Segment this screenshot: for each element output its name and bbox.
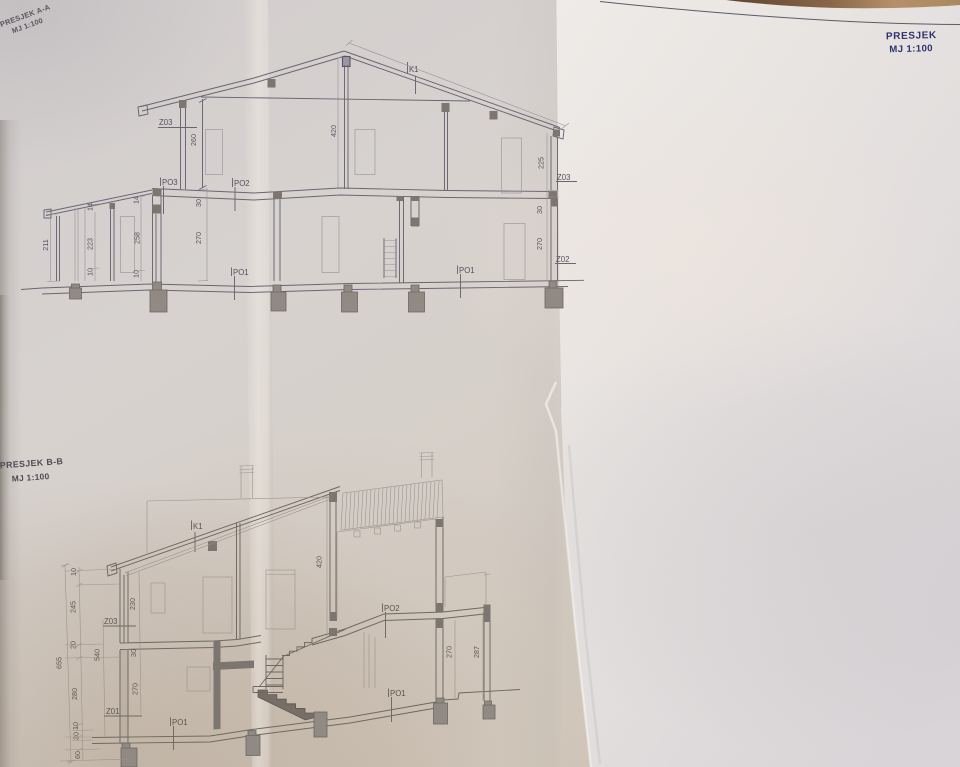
- svg-text:270: 270: [194, 232, 203, 244]
- svg-text:420: 420: [315, 556, 324, 568]
- svg-text:10: 10: [69, 568, 78, 576]
- svg-text:Z01: Z01: [106, 707, 119, 716]
- svg-text:260: 260: [189, 134, 198, 146]
- svg-text:14: 14: [86, 203, 95, 211]
- svg-text:10: 10: [86, 268, 95, 276]
- svg-text:245: 245: [69, 601, 78, 613]
- svg-text:30: 30: [194, 199, 203, 207]
- svg-text:PO1: PO1: [172, 718, 188, 727]
- svg-text:PO1: PO1: [459, 266, 475, 275]
- svg-text:225: 225: [537, 157, 546, 169]
- svg-text:MJ 1:100: MJ 1:100: [889, 43, 933, 55]
- svg-text:Z03: Z03: [159, 118, 172, 127]
- svg-text:270: 270: [445, 646, 454, 658]
- svg-text:PO1: PO1: [390, 689, 406, 698]
- svg-text:655: 655: [55, 657, 64, 669]
- svg-text:223: 223: [86, 238, 95, 250]
- svg-text:10: 10: [132, 270, 141, 278]
- svg-text:30: 30: [129, 649, 138, 657]
- svg-text:270: 270: [535, 238, 544, 250]
- svg-text:540: 540: [93, 649, 102, 661]
- svg-text:K1: K1: [193, 522, 203, 531]
- svg-text:258: 258: [133, 232, 142, 244]
- svg-text:280: 280: [70, 688, 79, 700]
- svg-text:PO1: PO1: [233, 268, 249, 277]
- svg-text:10: 10: [71, 722, 80, 730]
- svg-text:420: 420: [329, 125, 338, 137]
- svg-text:211: 211: [41, 239, 50, 250]
- svg-text:PO2: PO2: [234, 179, 250, 188]
- svg-text:230: 230: [128, 598, 137, 610]
- svg-text:Z03: Z03: [557, 173, 570, 182]
- svg-text:Z03: Z03: [104, 617, 117, 626]
- svg-text:PO2: PO2: [384, 604, 400, 613]
- svg-text:30: 30: [535, 206, 544, 214]
- svg-text:Z02: Z02: [556, 255, 569, 264]
- svg-text:287: 287: [472, 646, 481, 658]
- svg-text:PO3: PO3: [162, 178, 178, 187]
- svg-text:14: 14: [132, 196, 141, 204]
- svg-text:60: 60: [73, 751, 82, 759]
- svg-text:270: 270: [131, 683, 140, 695]
- svg-text:PRESJEK: PRESJEK: [886, 30, 937, 42]
